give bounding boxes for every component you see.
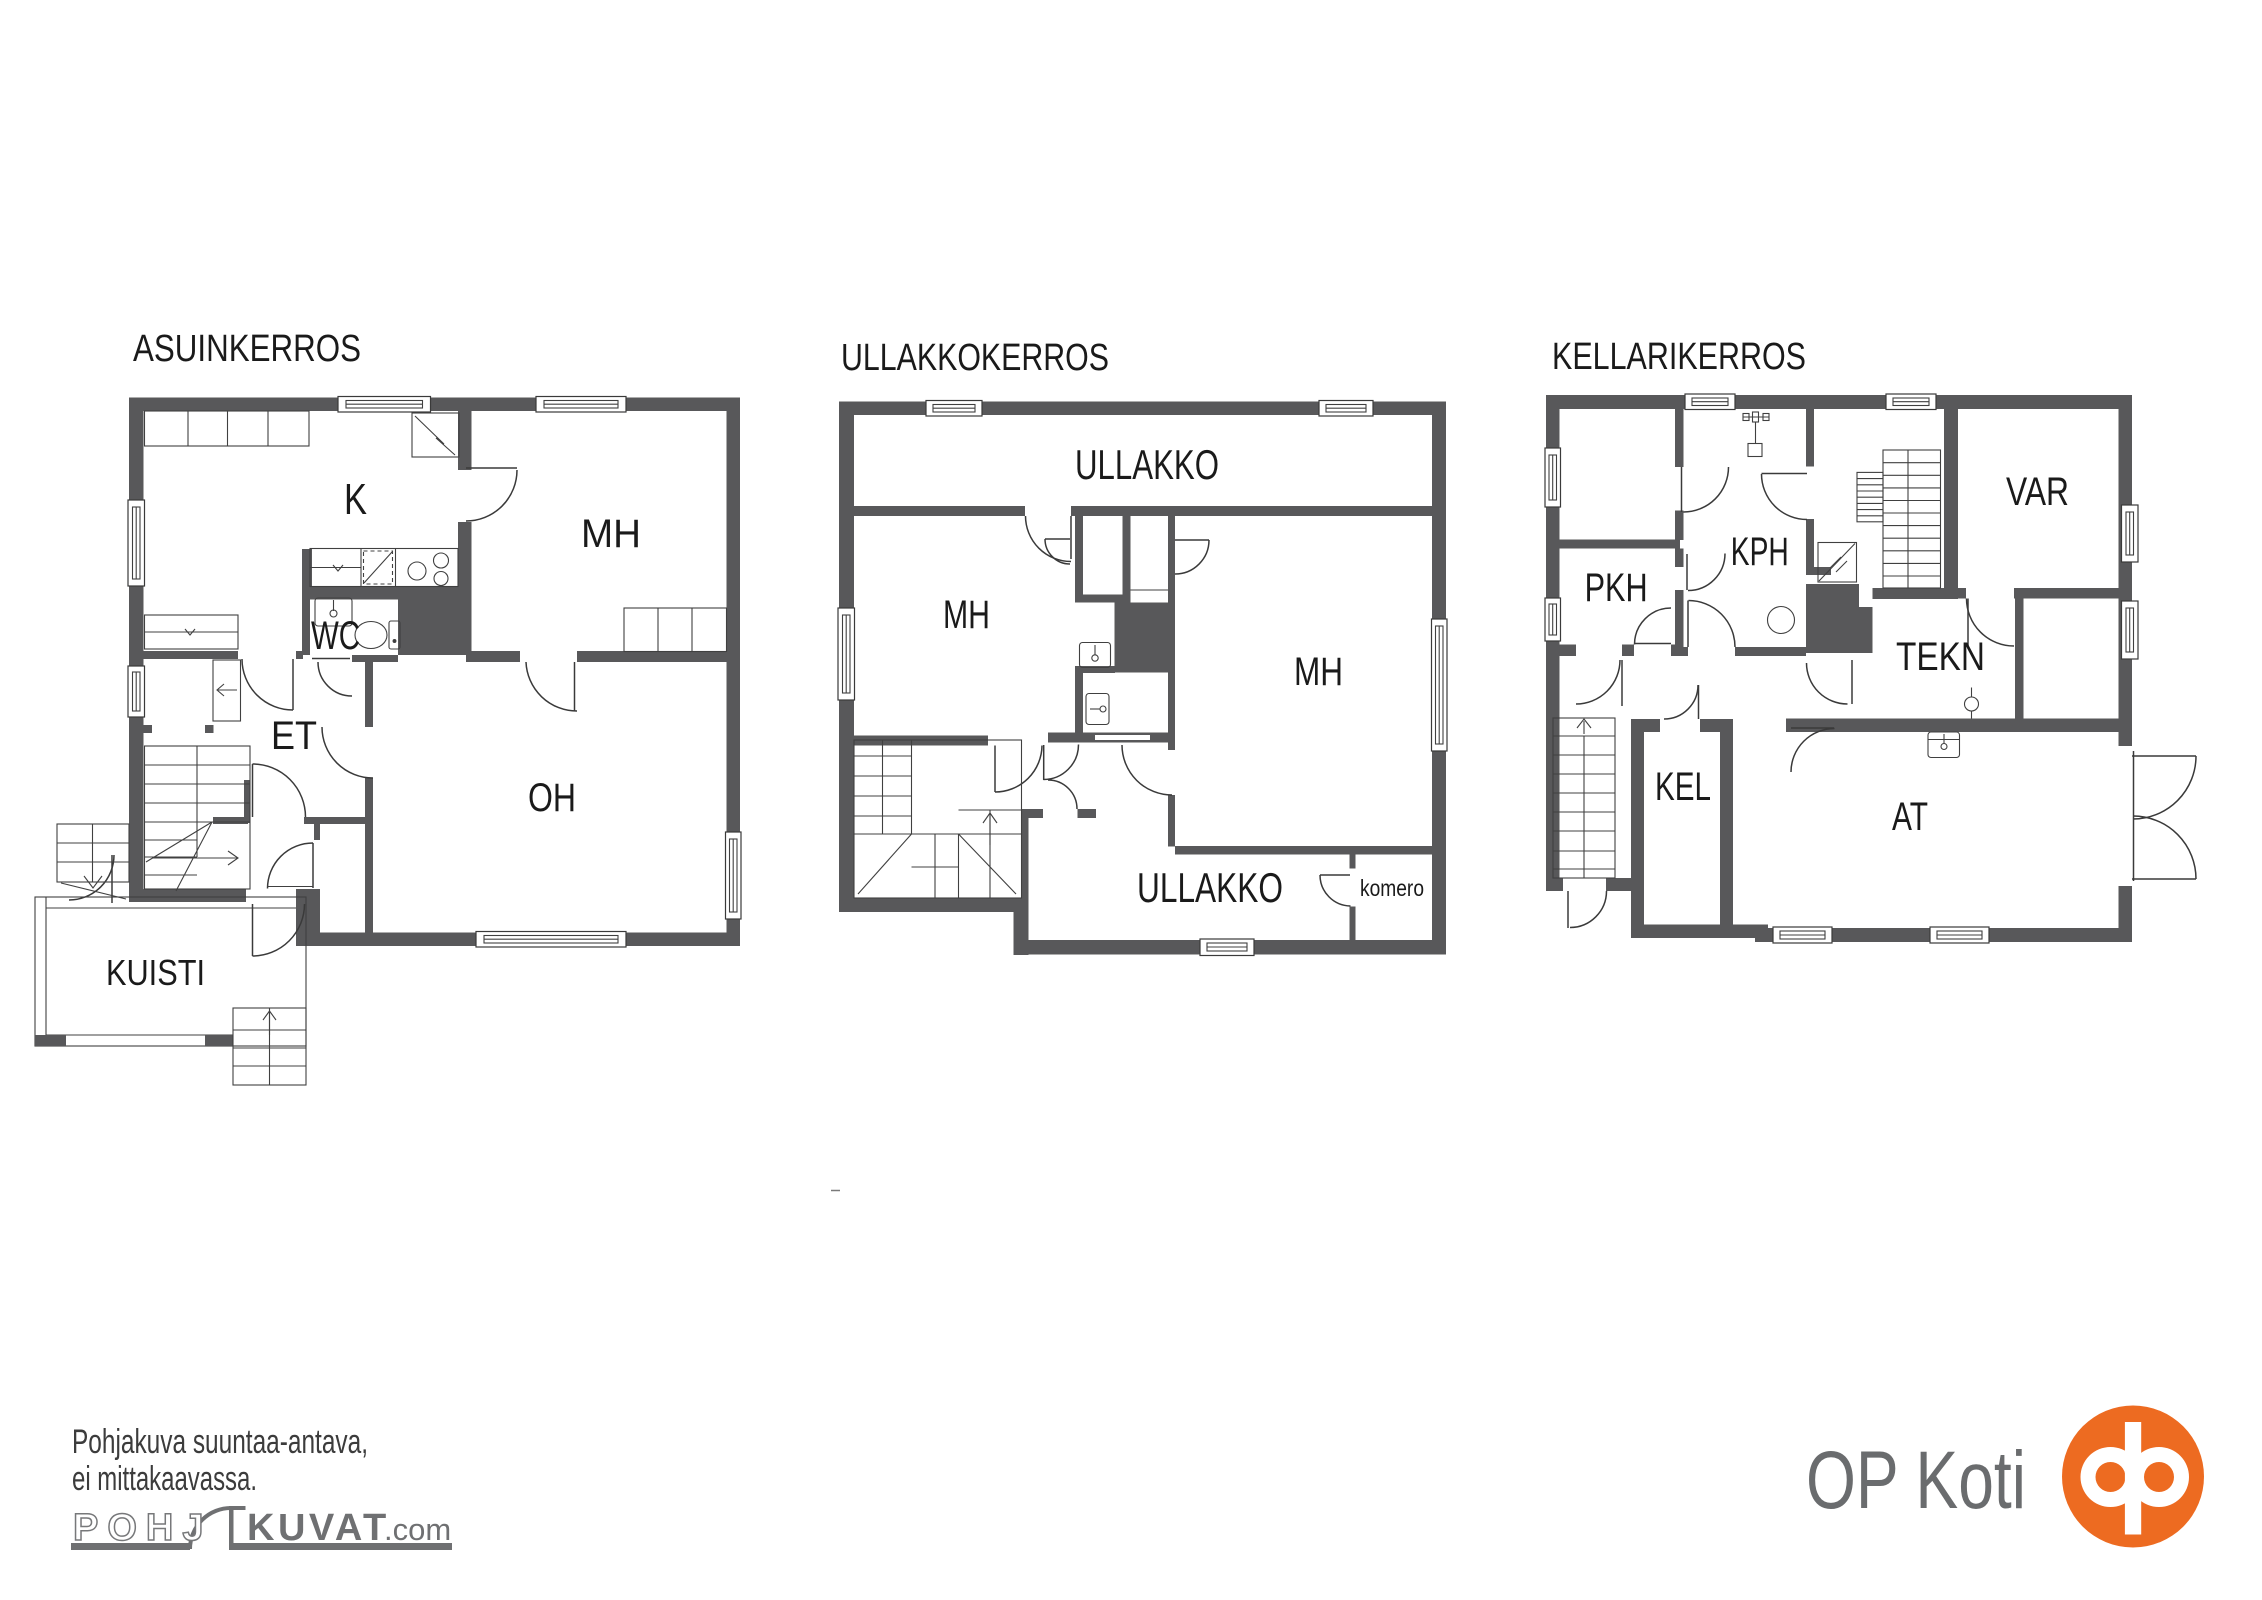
- svg-text:ULLAKKOKERROS: ULLAKKOKERROS: [841, 337, 1109, 379]
- svg-text:PKH: PKH: [1585, 566, 1648, 610]
- svg-text:MH: MH: [943, 593, 990, 637]
- svg-text:Pohjakuva suuntaa-antava,: Pohjakuva suuntaa-antava,: [72, 1423, 368, 1461]
- svg-text:POHJ: POHJ: [73, 1507, 212, 1549]
- svg-text:.com: .com: [384, 1512, 451, 1547]
- svg-text:KUISTI: KUISTI: [106, 952, 205, 993]
- svg-text:VAR: VAR: [2006, 470, 2069, 514]
- svg-text:MH: MH: [581, 512, 641, 556]
- svg-text:WC: WC: [311, 614, 360, 658]
- svg-text:AT: AT: [1892, 795, 1928, 839]
- svg-text:KELLARIKERROS: KELLARIKERROS: [1552, 336, 1806, 378]
- svg-text:ET: ET: [271, 714, 317, 758]
- svg-text:ei mittakaavassa.: ei mittakaavassa.: [72, 1460, 257, 1498]
- svg-text:ULLAKKO: ULLAKKO: [1137, 864, 1283, 911]
- svg-text:komero: komero: [1360, 875, 1424, 901]
- svg-text:ULLAKKO: ULLAKKO: [1075, 441, 1219, 488]
- svg-text:ASUINKERROS: ASUINKERROS: [133, 328, 361, 370]
- svg-text:KPH: KPH: [1731, 530, 1789, 574]
- svg-text:OH: OH: [528, 776, 576, 820]
- svg-text:OP Koti: OP Koti: [1806, 1435, 2026, 1526]
- svg-text:MH: MH: [1294, 650, 1343, 694]
- svg-text:KEL: KEL: [1655, 765, 1711, 809]
- svg-text:TEKN: TEKN: [1896, 635, 1985, 679]
- svg-text:K: K: [344, 475, 367, 524]
- svg-text:KUVAT: KUVAT: [247, 1507, 390, 1549]
